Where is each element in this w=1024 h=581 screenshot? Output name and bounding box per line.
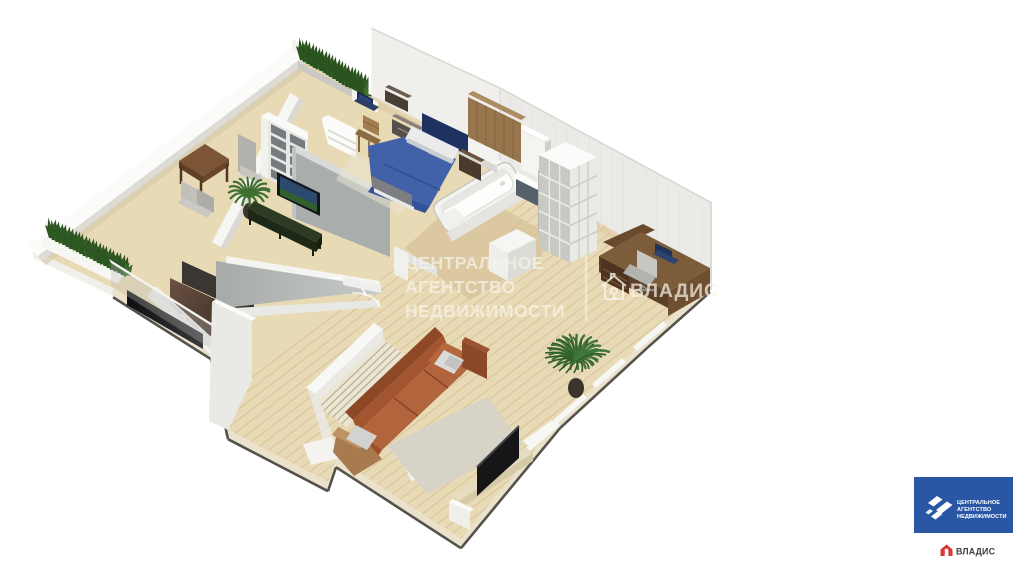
svg-text:ЦЕНТРАЛЬНОЕ: ЦЕНТРАЛЬНОЕ bbox=[957, 500, 1000, 506]
svg-text:НЕДВИЖИМОСТИ: НЕДВИЖИМОСТИ bbox=[957, 514, 1007, 520]
svg-text:ЦЕНТРАЛЬНОЕ: ЦЕНТРАЛЬНОЕ bbox=[405, 253, 544, 273]
svg-text:ВЛАДИС: ВЛАДИС bbox=[956, 547, 996, 557]
svg-text:АГЕНТСТВО: АГЕНТСТВО bbox=[957, 507, 992, 513]
svg-text:ВЛАДИС: ВЛАДИС bbox=[630, 280, 719, 302]
svg-text:НЕДВИЖИМОСТИ: НЕДВИЖИМОСТИ bbox=[405, 301, 565, 321]
svg-text:АГЕНТСТВО: АГЕНТСТВО bbox=[405, 277, 516, 297]
